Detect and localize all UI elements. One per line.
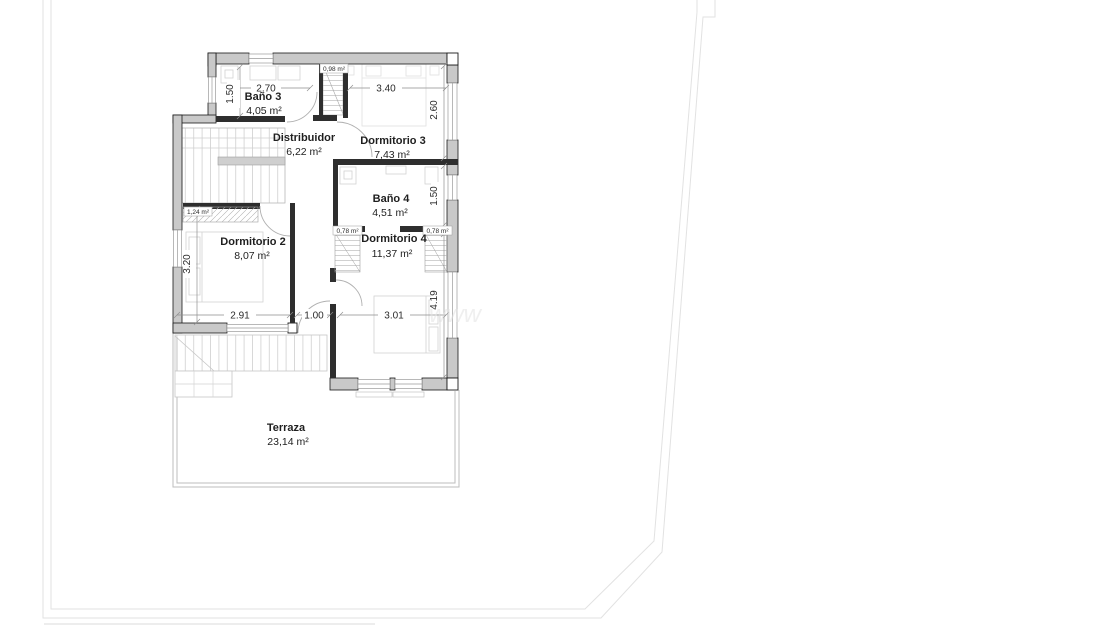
room-area-bano3: 4,05 m²	[246, 105, 282, 117]
dim-terrace-door-width: 1.00	[304, 311, 324, 322]
dim-bano4-depth: 1.50	[429, 186, 440, 206]
window-bottom-dormitorio4-a	[358, 380, 390, 389]
window-left-dormitorio2	[174, 230, 182, 267]
dim-bano3-depth: 1.50	[225, 84, 236, 104]
closet-left-area-label: 0,78 m²	[336, 228, 359, 235]
floor-plan-page: 2.70 1.50 3.40 2.60 1.50 3.20 2.91 1.00 …	[0, 0, 1110, 626]
room-label-terraza: Terraza	[267, 422, 306, 434]
room-label-distribuidor: Distribuidor	[273, 132, 336, 144]
door-dormitorio4	[336, 280, 362, 306]
watermark-text: www	[429, 301, 483, 328]
exterior-stairs	[175, 335, 327, 397]
door-dormitorio2	[260, 206, 290, 236]
dim-dormitorio2-width: 2.91	[230, 311, 250, 322]
window-right-bano4	[448, 175, 457, 200]
room-area-dormitorio2: 8,07 m²	[234, 250, 270, 262]
stairwell-area-label: 0,98 m²	[323, 66, 346, 73]
dim-dormitorio4-width: 3.01	[384, 311, 404, 322]
room-label-bano3: Baño 3	[245, 91, 282, 103]
dim-dormitorio3-depth: 2.60	[429, 100, 440, 120]
room-label-dormitorio4: Dormitorio 4	[361, 233, 427, 245]
room-label-bano4: Baño 4	[373, 193, 411, 205]
closet-right-area-label: 0,78 m²	[426, 228, 449, 235]
main-staircase	[182, 128, 285, 203]
window-right-dormitorio3	[448, 83, 457, 140]
floor-plan-svg: 2.70 1.50 3.40 2.60 1.50 3.20 2.91 1.00 …	[0, 0, 1110, 626]
wardrobe-area-label: 1,24 m²	[187, 209, 210, 216]
room-area-dormitorio3: 7,43 m²	[374, 149, 410, 161]
dim-dormitorio3-width: 3.40	[376, 84, 396, 95]
window-left-bano3	[209, 77, 216, 103]
room-area-terraza: 23,14 m²	[267, 436, 309, 448]
bed-dormitorio3	[345, 64, 439, 126]
dim-dormitorio2-depth: 3.20	[182, 254, 193, 274]
room-area-distribuidor: 6,22 m²	[286, 146, 322, 158]
door-bano3	[287, 92, 317, 122]
room-label-dormitorio3: Dormitorio 3	[360, 135, 425, 147]
window-bottom-dormitorio2	[227, 325, 288, 332]
window-top-bano3	[249, 54, 273, 63]
room-area-bano4: 4,51 m²	[372, 207, 408, 219]
room-area-dormitorio4: 11,37 m²	[372, 248, 413, 260]
window-bottom-dormitorio4-b	[395, 380, 422, 389]
room-label-dormitorio2: Dormitorio 2	[220, 236, 285, 248]
sink-bano4	[340, 167, 356, 184]
